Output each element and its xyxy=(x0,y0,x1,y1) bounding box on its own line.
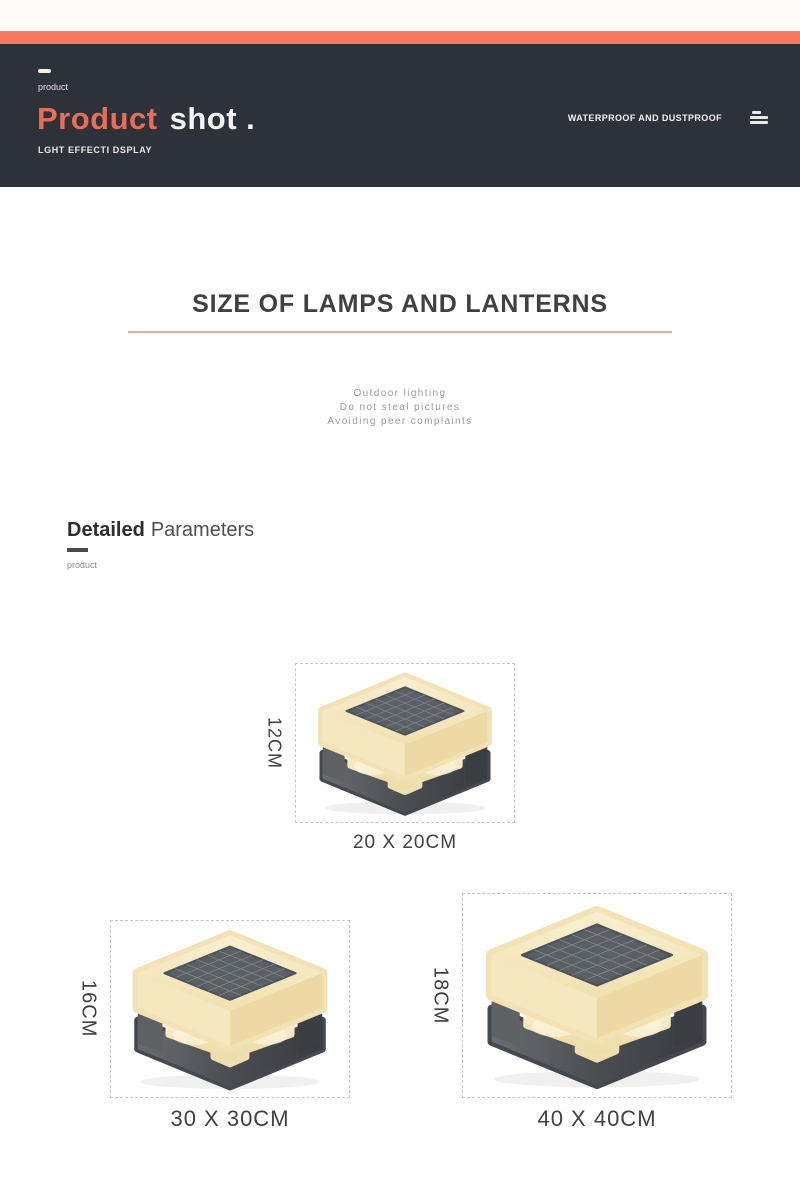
page-title-rest: shot . xyxy=(170,101,256,136)
page-title-accent: Product xyxy=(37,101,158,136)
lamp-footprint-label: 40 X 40CM xyxy=(462,1106,732,1132)
note-line: Do not steal pictures xyxy=(0,401,800,415)
eyebrow-dash xyxy=(38,69,51,73)
lamp-height-label: 16CM xyxy=(74,920,102,1098)
note-block: Outdoor lighting Do not steal pictures A… xyxy=(0,387,800,429)
lamp-size-box-30x30 xyxy=(110,920,350,1098)
lamp-image-40x40 xyxy=(468,900,726,1092)
header-banner: product Productshot . LGHT EFFECTI DSPLA… xyxy=(0,44,800,187)
details-caption: product xyxy=(67,560,97,570)
section-title: SIZE OF LAMPS AND LANTERNS xyxy=(0,290,800,319)
details-dash xyxy=(67,548,88,552)
lamp-height-label: 12CM xyxy=(260,663,288,823)
page-title: Productshot . xyxy=(37,101,255,137)
accent-bar xyxy=(0,31,800,44)
lamp-image-20x20 xyxy=(301,668,509,818)
hamburger-menu-icon[interactable] xyxy=(750,111,769,125)
top-margin-strip xyxy=(0,0,800,31)
note-line: Outdoor lighting xyxy=(0,387,800,401)
lamp-height-label: 18CM xyxy=(426,893,454,1098)
note-line: Avoiding peer complaints xyxy=(0,415,800,429)
section-title-underline xyxy=(128,331,672,333)
details-title: DetailedParameters xyxy=(67,519,254,542)
lamp-size-box-40x40 xyxy=(462,893,732,1098)
eyebrow-label: product xyxy=(38,82,68,92)
lamp-footprint-label: 20 X 20CM xyxy=(295,832,515,854)
details-title-regular: Parameters xyxy=(151,519,254,541)
header-subtitle: LGHT EFFECTI DSPLAY xyxy=(38,145,152,155)
lamp-footprint-label: 30 X 30CM xyxy=(110,1106,350,1132)
lamp-size-box-20x20 xyxy=(295,663,515,823)
details-title-bold: Detailed xyxy=(67,519,145,541)
page: product Productshot . LGHT EFFECTI DSPLA… xyxy=(0,0,800,1199)
waterproof-label: WATERPROOF AND DUSTPROOF xyxy=(568,113,722,123)
lamp-image-30x30 xyxy=(116,925,344,1093)
